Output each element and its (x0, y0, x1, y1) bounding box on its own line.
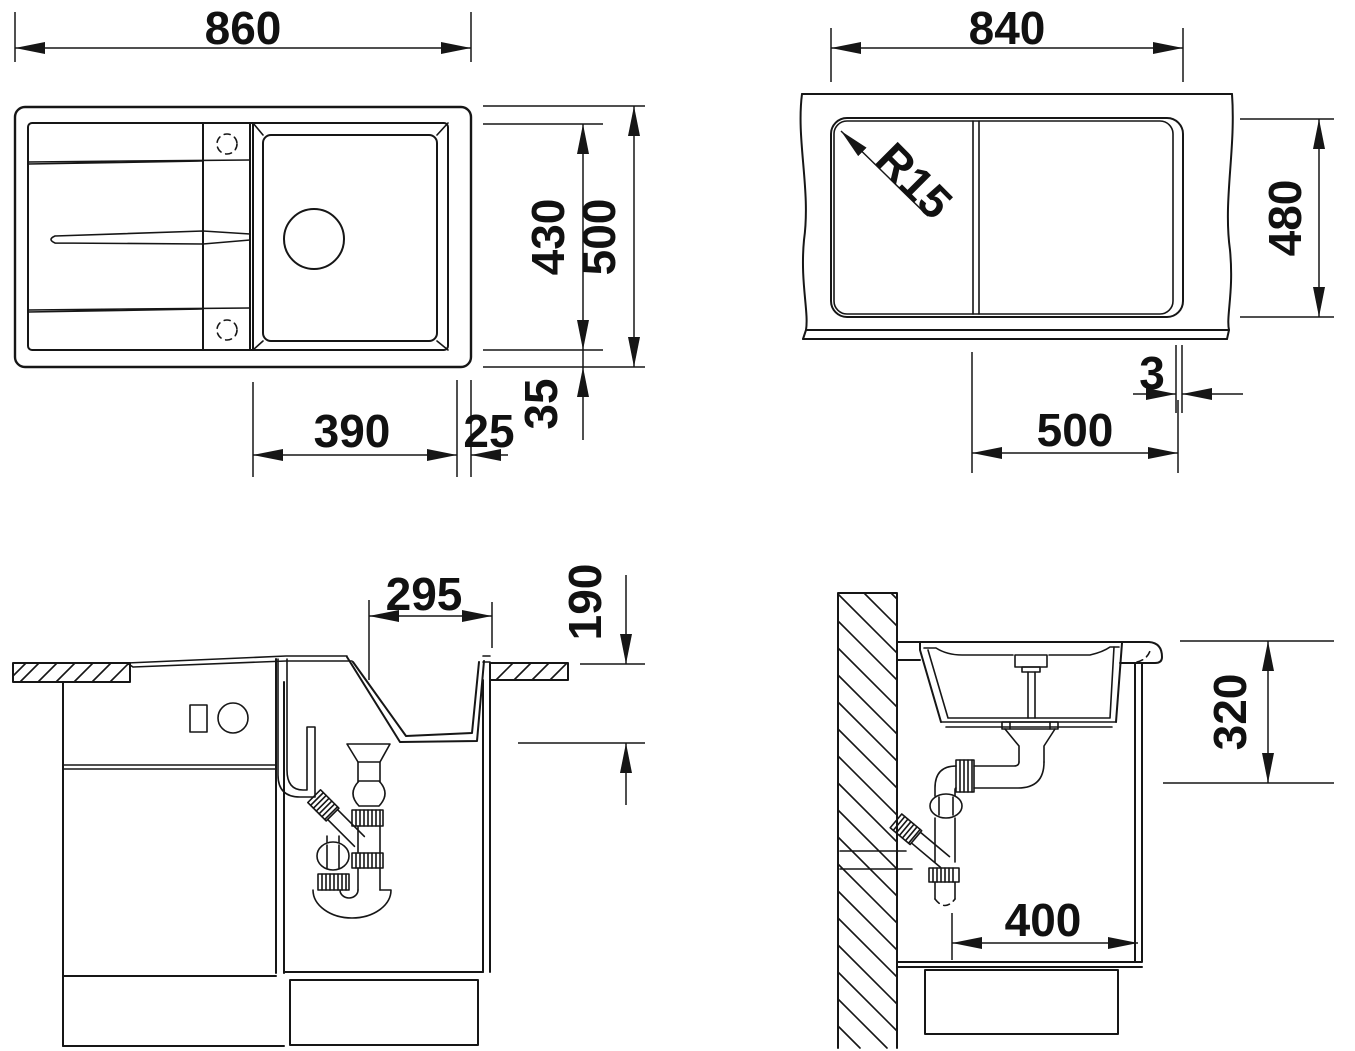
wall-branch (890, 814, 951, 869)
cabinet-front (63, 659, 490, 1046)
counter-front-edge (803, 330, 1229, 339)
dim-label-320: 320 (1204, 674, 1256, 751)
sink-bottom-lines (928, 647, 1116, 727)
drawing-canvas: 860 430 500 35 390 25 (0, 0, 1355, 1051)
control-knob (218, 703, 248, 733)
dim-label-430: 430 (522, 199, 574, 276)
bowl-bevel-corners (253, 123, 448, 350)
dim-label-3: 3 (1139, 347, 1165, 399)
countertop-outline (801, 94, 1233, 339)
wall-hatch (838, 593, 897, 1048)
dim-label-500b: 500 (1037, 404, 1114, 456)
trap-assembly-side (840, 722, 1058, 906)
front-section-view: 295 190 (13, 564, 645, 1046)
dim-label-295: 295 (386, 568, 463, 620)
dim-label-25: 25 (463, 405, 514, 457)
side-section-view: 320 400 (838, 593, 1334, 1048)
bowl-section (347, 657, 484, 742)
cutout-outline (831, 118, 1183, 317)
dim-label-400: 400 (1005, 894, 1082, 946)
pipe-coupling-side (930, 794, 962, 818)
drain-body (1005, 729, 1055, 762)
plinth-front (290, 980, 478, 1045)
pipe-open-end (935, 899, 955, 906)
plinth-side (925, 970, 1118, 1034)
drain-flange-side (1015, 655, 1047, 667)
drawer-divider (63, 765, 276, 769)
dim-label-390: 390 (314, 405, 391, 457)
u-bend (313, 890, 391, 918)
tap-hole-bottom (217, 320, 237, 340)
drain-pipe-in-bowl (1028, 672, 1035, 718)
dim-label-r15: R15 (866, 132, 962, 228)
drain-hole (284, 209, 344, 269)
trap-assembly-front (308, 744, 391, 918)
counter-break-left (801, 94, 807, 339)
counter-hidden-radius (1137, 647, 1151, 662)
counter-left (13, 663, 130, 682)
top-view-dimensions: 860 430 500 35 390 25 (15, 2, 645, 477)
tap-hole-top (217, 134, 237, 154)
cutout-edge (831, 118, 1183, 317)
wall-drain-socket (840, 851, 912, 869)
tailpipe (358, 762, 380, 782)
dishwasher-branch (308, 790, 366, 848)
dim-label-840: 840 (969, 2, 1046, 54)
cutout-view: R15 840 480 3 500 (801, 2, 1334, 473)
dim-label-35: 35 (515, 378, 567, 429)
cabinet-bottom (63, 972, 483, 1046)
control-rect (190, 705, 207, 732)
cutout-dimensions: R15 840 480 3 500 (831, 2, 1334, 473)
drainboard-profile (127, 656, 490, 667)
trap-coupling (317, 842, 349, 870)
hatch-left-counter (13, 663, 129, 682)
counter-stub-left (897, 642, 920, 660)
sink-front-profile (127, 656, 490, 797)
counter-break-right (1227, 94, 1233, 339)
sink-top-surface (924, 647, 1119, 655)
sink-inner-rim (28, 123, 448, 350)
dim-label-500: 500 (573, 199, 625, 276)
cabinet-walls (63, 659, 490, 1046)
wall (838, 593, 897, 1048)
drain-groove (51, 231, 250, 244)
top-view: 860 430 500 35 390 25 (15, 2, 645, 477)
dim-label-190: 190 (559, 564, 611, 641)
sink-side-profile (920, 642, 1122, 727)
divider-lines (203, 123, 253, 350)
technical-drawing: 860 430 500 35 390 25 (0, 0, 1355, 1051)
counter-right (490, 663, 568, 680)
top-view-sink-outline (15, 107, 471, 367)
ball-joint (353, 781, 385, 806)
cutout-divider (973, 121, 979, 314)
dim-label-480: 480 (1259, 180, 1311, 257)
hatch-right-counter (496, 663, 567, 680)
sink-outer-edge (15, 107, 471, 367)
elbow-right (974, 762, 1044, 788)
front-dimensions: 295 190 (369, 564, 645, 805)
bowl-inner-edge (263, 135, 437, 341)
elbow-left (935, 766, 956, 796)
drain-flange (347, 744, 390, 762)
dim-label-860: 860 (205, 2, 282, 54)
